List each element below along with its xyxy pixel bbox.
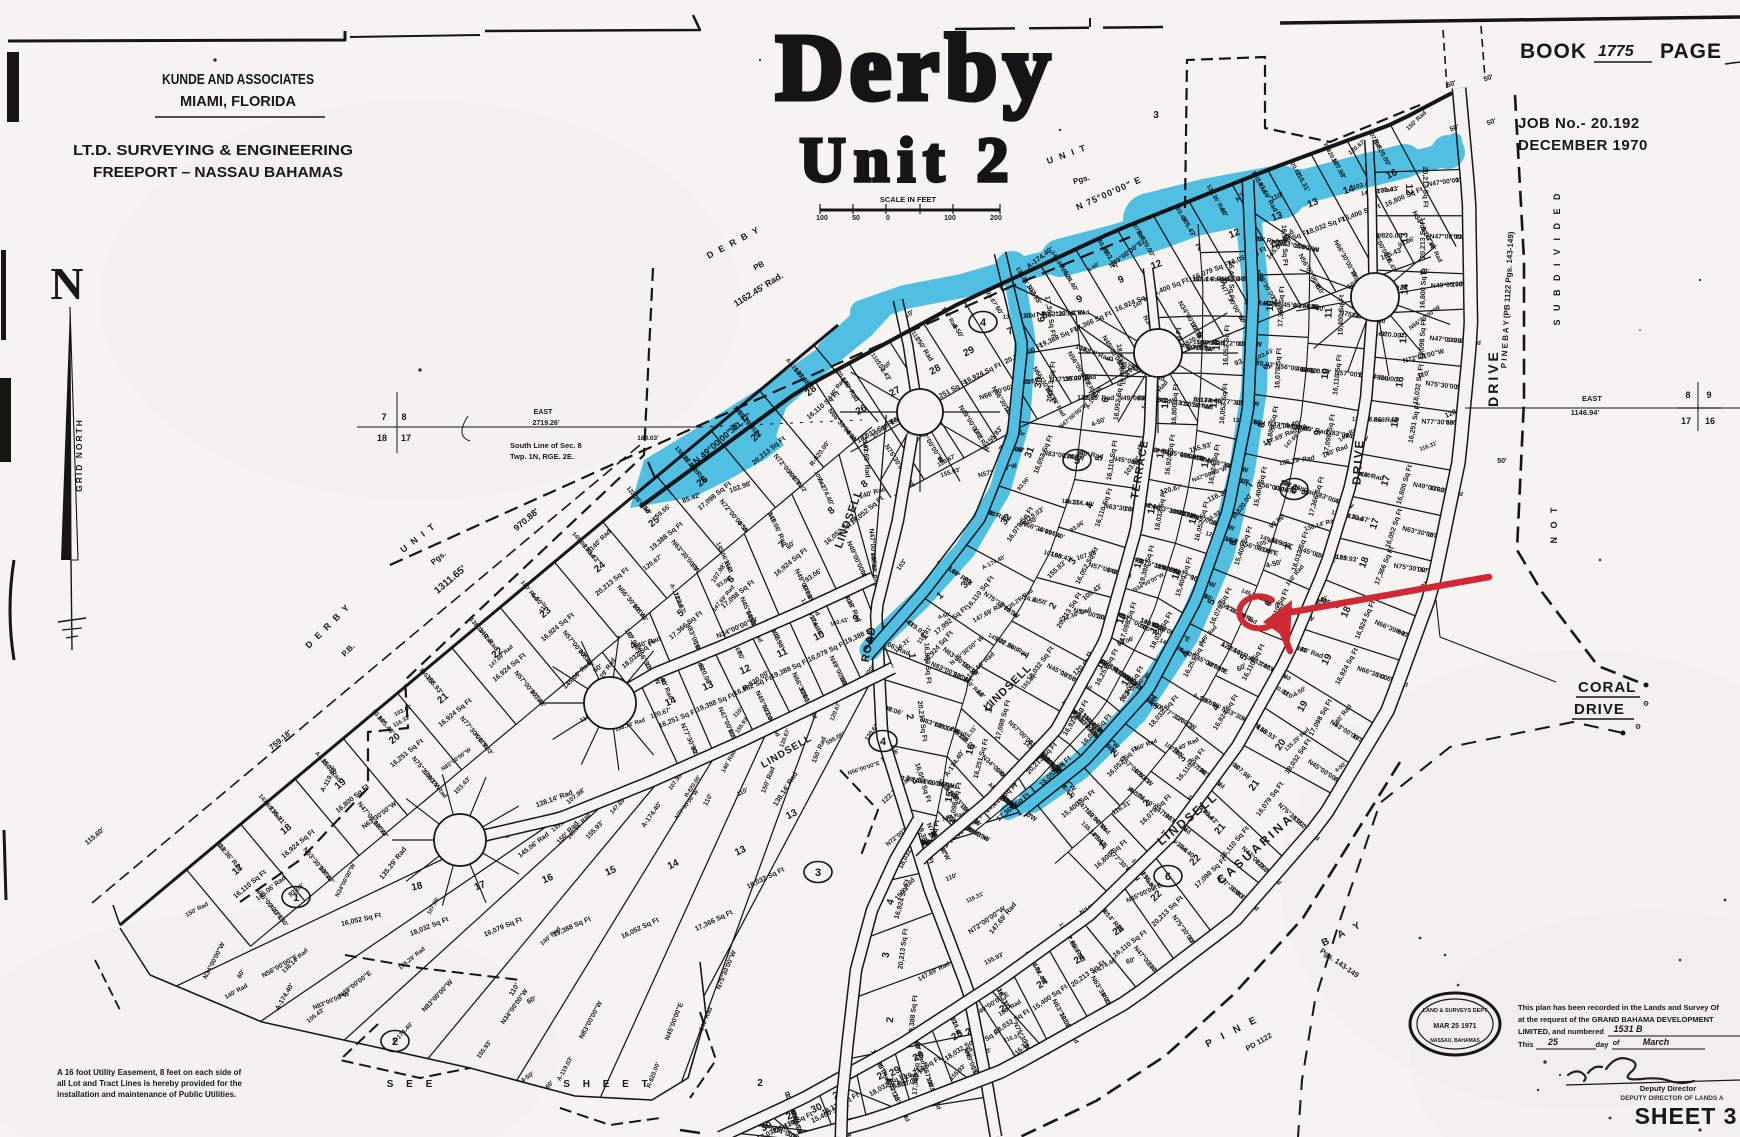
svg-text:1: 1	[293, 892, 299, 904]
svg-text:LT.D. SURVEYING & ENGINEERING: LT.D. SURVEYING & ENGINEERING	[73, 142, 353, 159]
svg-text:1146.94': 1146.94'	[1571, 408, 1600, 417]
svg-text:8: 8	[1685, 390, 1690, 400]
svg-text:DRIVE: DRIVE	[1574, 701, 1625, 718]
svg-text:EAST: EAST	[1582, 394, 1602, 403]
svg-text:4: 4	[880, 736, 887, 748]
svg-text:۞: ۞	[1642, 697, 1649, 707]
svg-text:12: 12	[1403, 184, 1414, 196]
svg-text:9: 9	[1706, 390, 1711, 400]
svg-text:CORAL: CORAL	[1578, 679, 1636, 696]
svg-text:S U B D I V I D E D: S U B D I V I D E D	[1552, 190, 1562, 325]
svg-text:11: 11	[1324, 307, 1335, 318]
svg-text:BOOK: BOOK	[1520, 40, 1587, 63]
svg-text:100: 100	[816, 215, 828, 222]
svg-text:NASSAU, BAHAMAS: NASSAU, BAHAMAS	[1430, 1038, 1480, 1044]
svg-text:This plan has been recorded in: This plan has been recorded in the Lands…	[1518, 1003, 1719, 1012]
svg-text:2719.26': 2719.26'	[533, 420, 560, 427]
svg-text:5: 5	[1074, 455, 1080, 467]
svg-text:7: 7	[381, 412, 386, 422]
svg-text:100: 100	[944, 215, 956, 222]
svg-text:50': 50'	[1497, 458, 1507, 465]
svg-text:20,213 Sq Ft: 20,213 Sq Ft	[1420, 217, 1427, 259]
svg-text:day: day	[1596, 1040, 1610, 1049]
svg-text:at the request of the GRAND: at the request of the GRAND BAHAMA DEVEL…	[1518, 1015, 1714, 1024]
svg-text:S H E E T: S H E E T	[563, 1079, 652, 1090]
svg-text:KUNDE AND ASSOCIATES: KUNDE AND ASSOCIATES	[162, 71, 314, 88]
svg-text:EAST: EAST	[534, 409, 553, 416]
svg-text:LAND & SURVEYS DEPT: LAND & SURVEYS DEPT	[1423, 1008, 1488, 1014]
svg-text:SCALE IN FEET: SCALE IN FEET	[880, 195, 937, 204]
svg-text:3: 3	[1153, 110, 1159, 121]
svg-text:Deputy Director: Deputy Director	[1640, 1084, 1696, 1093]
svg-text:N: N	[50, 258, 83, 309]
svg-text:1775: 1775	[1598, 43, 1635, 60]
svg-text:138.14' Rad: 138.14' Rad	[1189, 277, 1222, 283]
svg-text:0: 0	[886, 215, 890, 222]
svg-text:installation and maintenance o: installation and maintenance of Public U…	[57, 1090, 236, 1099]
svg-text:GRID NORTH: GRID NORTH	[74, 418, 84, 492]
svg-text:SHEET 3: SHEET 3	[1635, 1103, 1738, 1129]
svg-text:PAGE: PAGE	[1660, 40, 1722, 63]
svg-text:LIMITED, and numbered: LIMITED, and numbered	[1518, 1027, 1604, 1036]
svg-text:Twp. 1N, RGE. 2E.: Twp. 1N, RGE. 2E.	[510, 452, 574, 461]
svg-text:N O T: N O T	[1549, 505, 1559, 544]
svg-text:March: March	[1643, 1037, 1670, 1047]
svg-text:16: 16	[1705, 416, 1715, 426]
svg-text:MAR 25 1971: MAR 25 1971	[1433, 1023, 1476, 1030]
svg-text:MIAMI, FLORIDA: MIAMI, FLORIDA	[180, 93, 296, 110]
svg-text:8: 8	[401, 412, 406, 422]
svg-text:18: 18	[377, 433, 387, 443]
svg-text:Unit 2: Unit 2	[800, 124, 1017, 195]
svg-text:1531 B: 1531 B	[1613, 1024, 1643, 1034]
svg-text:25: 25	[1547, 1037, 1559, 1047]
svg-text:50: 50	[852, 215, 860, 222]
svg-text:of: of	[1613, 1040, 1620, 1047]
svg-text:DEPUTY DIRECTOR OF LANDS A: DEPUTY DIRECTOR OF LANDS A	[1620, 1095, 1723, 1102]
svg-text:A 16 foot Utility Easement, 8: A 16 foot Utility Easement, 8 feet on ea…	[57, 1068, 242, 1077]
svg-text:6: 6	[1165, 871, 1171, 883]
svg-text:FREEPORT – NASSAU BAHAMAS: FREEPORT – NASSAU BAHAMAS	[93, 164, 343, 181]
svg-text:2: 2	[757, 1078, 763, 1089]
svg-text:DECEMBER 1970: DECEMBER 1970	[1518, 137, 1648, 154]
svg-text:۞: ۞	[1634, 720, 1641, 730]
svg-text:South Line of Sec. 8: South Line of Sec. 8	[510, 441, 582, 450]
svg-text:JOB No.- 20.192: JOB No.- 20.192	[1518, 115, 1640, 132]
svg-text:17: 17	[1681, 416, 1691, 426]
svg-text:This: This	[1518, 1040, 1533, 1049]
svg-text:Derby: Derby	[776, 16, 1057, 120]
svg-text:DRIVE: DRIVE	[1485, 349, 1501, 407]
svg-text:all Lot and Tract Lines is her: all Lot and Tract Lines is hereby provid…	[57, 1079, 242, 1088]
svg-text:3: 3	[815, 867, 821, 879]
svg-text:200: 200	[990, 215, 1002, 222]
svg-text:S E E: S E E	[387, 1079, 438, 1090]
svg-text:2: 2	[392, 1036, 398, 1048]
svg-text:4: 4	[980, 317, 987, 329]
svg-text:6: 6	[1291, 484, 1297, 496]
svg-text:17: 17	[401, 433, 411, 443]
svg-text:184.03': 184.03'	[637, 435, 659, 442]
